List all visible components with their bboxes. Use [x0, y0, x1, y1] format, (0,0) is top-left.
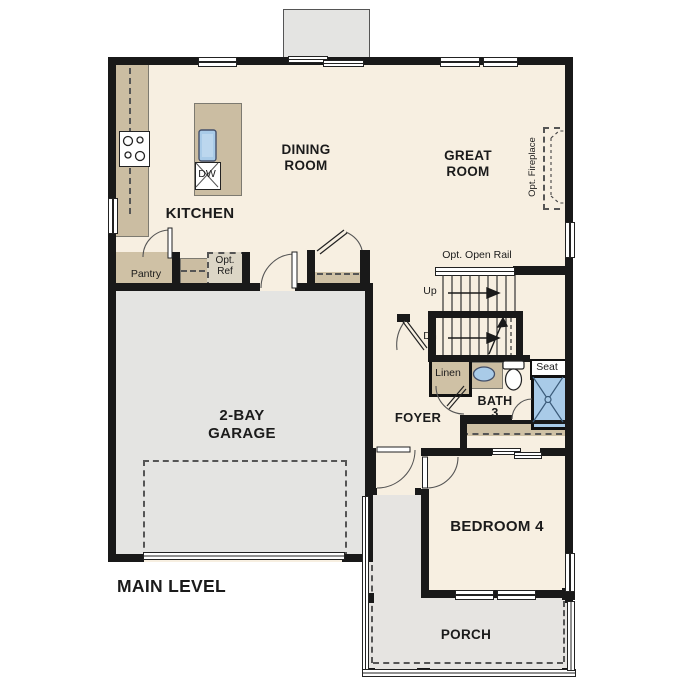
- patio-slider-panel: [288, 56, 328, 63]
- floor-plan: DINING ROOM GREAT ROOM KITCHEN 2-BAY GAR…: [0, 0, 687, 687]
- wall-garage-bottom: [108, 554, 144, 562]
- wall-garage-top: [108, 283, 260, 291]
- cabinet-dashed-line: [181, 270, 205, 272]
- label-stairs-down: Dn: [420, 331, 440, 342]
- stove: [119, 131, 150, 167]
- porch-roof-dashed-line: [373, 662, 563, 664]
- great-room-window: [440, 57, 480, 67]
- room-label-garage: 2-BAY GARAGE: [192, 407, 292, 442]
- room-label-porch: PORCH: [426, 627, 506, 643]
- porch-edge: [362, 669, 576, 677]
- porch-roof-dashed-line: [563, 601, 565, 662]
- porch-edge: [362, 496, 369, 675]
- room-label-foyer: FOYER: [378, 410, 458, 425]
- patio-slider-panel: [323, 60, 364, 67]
- label-stairs-up: Up: [420, 286, 440, 297]
- wall-exterior-left: [108, 57, 116, 562]
- room-label-bedroom: BEDROOM 4: [437, 518, 557, 536]
- bedroom-window: [497, 590, 536, 600]
- wall-foyer-front: [415, 488, 421, 495]
- room-label-kitchen: KITCHEN: [150, 205, 250, 223]
- room-label-dining: DINING ROOM: [256, 142, 356, 174]
- bedroom-window: [455, 590, 494, 600]
- wall-coat-closet: [307, 250, 315, 291]
- wall-foyer-front: [368, 488, 377, 495]
- kitchen-window: [198, 57, 237, 67]
- label-linen: Linen: [430, 368, 466, 379]
- garage-door-dashed-outline: [143, 460, 347, 558]
- wall-foyer-stub: [369, 448, 376, 493]
- wall-stub: [242, 252, 250, 291]
- bath-vanity: [467, 362, 503, 389]
- great-room-window: [483, 57, 518, 67]
- wall-stair-mid: [428, 311, 521, 318]
- room-label-great: GREAT ROOM: [418, 148, 518, 180]
- entry-walkway: [368, 562, 421, 598]
- wall-bath-top: [428, 355, 530, 362]
- porch-edge: [567, 601, 575, 671]
- bedroom-side-window: [565, 553, 575, 592]
- wall-stub-basement-door: [397, 314, 410, 322]
- wall-exterior-right: [565, 57, 573, 603]
- bedroom-closet-dashed-line: [462, 433, 562, 435]
- wall-stair-rail-solid: [513, 266, 565, 275]
- label-fireplace: Opt. Fireplace: [528, 126, 540, 208]
- closet-slider-panel: [514, 452, 542, 459]
- porch-roof-dashed-line: [371, 565, 373, 663]
- kitchen-side-window: [108, 198, 118, 234]
- coat-closet-dashed-line: [317, 273, 359, 275]
- great-room-side-window: [565, 222, 575, 258]
- wall-bedroom-top: [421, 448, 492, 456]
- label-opt-ref: Opt. Ref: [207, 256, 243, 277]
- wall-bedroom-left: [421, 489, 429, 598]
- wall-coat-closet: [360, 250, 370, 291]
- plan-title: MAIN LEVEL: [117, 576, 226, 597]
- wall-bedroom-left: [421, 448, 429, 456]
- label-pantry: Pantry: [116, 269, 176, 280]
- label-open-rail: Opt. Open Rail: [427, 250, 527, 261]
- garage-door: [143, 552, 345, 560]
- patio-bumpout: [283, 9, 370, 59]
- wall-bedroom-top: [540, 448, 573, 456]
- open-rail: [435, 267, 515, 276]
- label-dishwasher: DW: [195, 169, 219, 180]
- label-seat: Seat: [530, 362, 564, 373]
- room-label-bath-number: 3: [465, 406, 525, 421]
